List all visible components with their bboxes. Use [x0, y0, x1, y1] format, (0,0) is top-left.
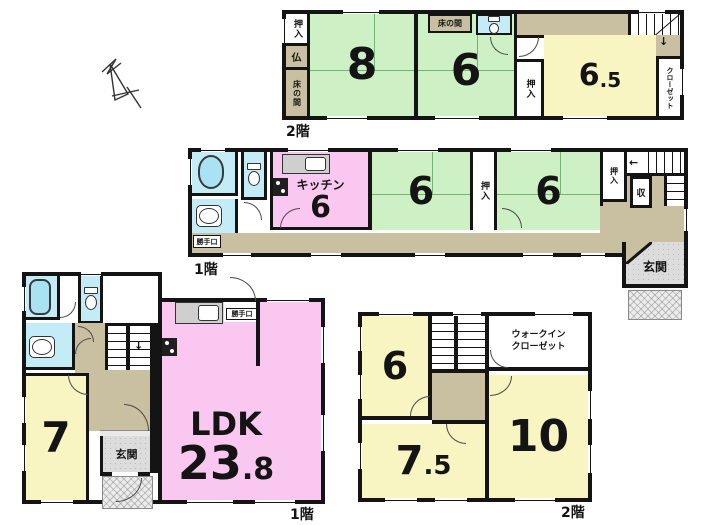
floorplan-1f-main-west: ↓ 7 玄関 — [22, 272, 162, 504]
back-door: 勝手口 — [193, 235, 221, 248]
floorplan-1f-main-ldk: 勝手口 LDK 23 .8 — [158, 298, 325, 504]
washroom-main — [26, 323, 75, 370]
window-icon — [321, 414, 325, 452]
door-swing-icon — [116, 478, 142, 502]
back-door: 勝手口 — [226, 308, 258, 320]
window-icon — [222, 253, 252, 257]
toilet-room-2f — [476, 14, 512, 35]
window-icon — [282, 18, 286, 44]
window-icon — [321, 326, 325, 364]
floor-label-1f-annex: 1階 — [194, 259, 218, 279]
window-icon — [397, 148, 439, 152]
sink-bowl — [199, 208, 219, 224]
room-6-2f-size: 6 — [382, 347, 408, 385]
toilet-icon — [84, 287, 98, 310]
floorplan-2f-main: 6 ウォークイン クローゼット 10 7 .5 — [358, 312, 592, 502]
floor-label-1f-main: 1階 — [290, 504, 314, 524]
window-icon — [414, 253, 446, 257]
closet-b-label: 押入 — [610, 167, 618, 185]
burner — [165, 341, 169, 345]
bathtub-icon — [198, 155, 224, 189]
window-icon — [358, 326, 362, 352]
window-icon — [22, 396, 26, 424]
window-icon — [638, 10, 666, 14]
north-arrow-icon — [98, 55, 148, 113]
window-icon — [434, 116, 480, 120]
entrance-label: 玄関 — [116, 446, 138, 462]
window-icon — [588, 444, 592, 474]
hallway-area — [517, 14, 628, 35]
stair-treads — [641, 152, 684, 173]
window-icon — [326, 116, 368, 120]
closet-mid: 押入 — [517, 59, 544, 116]
toilet-room-1f — [241, 152, 267, 200]
stove-icon — [273, 178, 288, 196]
window-icon — [342, 10, 380, 14]
window-icon — [358, 374, 362, 400]
kitchen-size: 6 — [310, 193, 331, 223]
door-swing-icon — [244, 202, 262, 220]
entrance-porch-main — [102, 476, 153, 509]
room-8-size: 8 — [347, 43, 378, 87]
window-icon — [358, 442, 362, 470]
window-icon — [588, 390, 592, 420]
stair-arrow-icon: ↓ — [134, 340, 143, 351]
stair-treads — [108, 326, 126, 370]
entrance: 玄関 — [626, 248, 684, 284]
ldk-room: LDK 23 .8 — [156, 402, 296, 492]
room-10-size: 10 — [508, 415, 569, 459]
toilet-bowl — [489, 23, 499, 34]
staircase-icon: ← — [627, 152, 684, 176]
wic-label-line1: ウォークイン — [511, 330, 565, 342]
floorplan-1f-annex: 勝手口 キッチン 6 6 押入 6 押入 収 ← — [188, 148, 688, 257]
window-icon — [266, 298, 310, 302]
back-door-label: 勝手口 — [232, 309, 253, 319]
window-icon — [534, 312, 574, 316]
wall — [256, 302, 260, 366]
storage: 収 — [630, 176, 652, 208]
floor-label-2f-annex: 2階 — [286, 121, 310, 141]
butsudan-label: 仏 — [292, 49, 302, 64]
floorplan-2f-annex: 押入 仏 床の間 8 6 床の間 ↓ 押入 6 .5 — [282, 10, 684, 120]
room-7-5-frac: .5 — [423, 453, 451, 479]
ldk-size-main: 23 — [178, 440, 242, 486]
sink-basin — [305, 157, 326, 171]
wic-label-line2: クローゼット — [511, 342, 565, 354]
room-6-5-frac: .5 — [600, 70, 622, 90]
entrance-porch — [628, 290, 682, 320]
toilet-tank — [488, 16, 500, 22]
door-swing-icon — [230, 277, 256, 301]
window-icon — [580, 253, 606, 257]
burner — [170, 349, 174, 353]
back-door-label: 勝手口 — [197, 237, 218, 247]
hallway-area — [432, 373, 485, 420]
window-icon — [510, 148, 552, 152]
window-icon — [434, 498, 468, 502]
burner — [276, 181, 280, 185]
staircase-icon — [664, 176, 684, 206]
closet-right-label: クローゼット — [666, 67, 673, 109]
window-icon — [310, 253, 342, 257]
room-6-left-size: 6 — [408, 172, 434, 210]
toilet-room-main — [78, 276, 103, 324]
window-icon — [80, 272, 102, 276]
closet-right: クローゼット — [656, 56, 680, 116]
storage-label: 収 — [636, 186, 645, 199]
ldk-size: 23 .8 — [178, 440, 274, 486]
window-icon — [22, 444, 26, 472]
window-icon — [384, 498, 418, 502]
window-icon — [684, 208, 688, 232]
floor-label-2f-main: 2階 — [561, 502, 585, 522]
room-6-size: 6 — [451, 49, 482, 93]
window-icon — [378, 312, 414, 316]
closet-left: 押入 — [286, 14, 310, 46]
room-8-tatami: 8 — [310, 14, 414, 116]
room-6-right-size: 6 — [535, 172, 561, 210]
closet-mid-label: 押入 — [525, 79, 534, 99]
room-6-5-size: 6 — [579, 61, 600, 91]
butsudan-space: 仏 — [286, 46, 310, 70]
window-icon — [200, 148, 226, 152]
entrance-hall-1f-annex: 玄関 — [622, 242, 688, 288]
room-7-5: 7 .5 — [362, 424, 485, 498]
staircase-icon: ↓ — [105, 323, 150, 370]
closet-label: 押入 — [292, 19, 301, 39]
window-icon — [254, 500, 296, 504]
toilet-icon — [247, 163, 261, 186]
toilet-tank — [84, 287, 98, 294]
window-icon — [452, 312, 482, 316]
entrance-hall-main: 玄関 — [100, 436, 150, 472]
floorplan-canvas: 押入 仏 床の間 8 6 床の間 ↓ 押入 6 .5 — [0, 0, 705, 525]
window-icon — [40, 500, 74, 504]
toilet-bowl — [248, 171, 260, 186]
bathroom — [192, 152, 238, 196]
closet-a: 押入 — [470, 152, 497, 230]
sink-icon — [196, 205, 222, 227]
tokonoma-top: 床の間 — [428, 14, 472, 33]
room-10: 10 — [489, 375, 588, 498]
stair-arrow-icon: ↓ — [659, 36, 668, 47]
bathroom-main — [26, 276, 60, 320]
window-icon — [514, 498, 556, 502]
room-7-5-size: 7 — [396, 441, 424, 481]
burner — [281, 189, 285, 193]
toilet-bowl — [85, 295, 97, 310]
window-icon — [680, 68, 684, 96]
sink-bowl — [32, 339, 52, 355]
door-swing-icon — [60, 302, 76, 318]
window-icon — [186, 500, 234, 504]
stair-arrow-icon: ← — [629, 157, 638, 168]
window-icon — [22, 286, 26, 312]
door-swing-icon — [519, 37, 539, 57]
toilet-icon — [488, 16, 500, 34]
toilet-tank — [247, 163, 261, 170]
staircase-icon — [432, 316, 485, 373]
washroom — [192, 199, 238, 233]
kitchen-sink-icon — [282, 154, 330, 174]
stair-treads — [667, 176, 684, 206]
room-6-left-tatami: 6 — [372, 152, 470, 230]
tokonoma-top-label: 床の間 — [438, 18, 462, 29]
ldk-size-frac: .8 — [242, 455, 274, 485]
stove-icon — [162, 338, 177, 356]
sink-basin — [198, 305, 219, 321]
hallway-area — [192, 233, 684, 253]
window-icon — [287, 148, 329, 152]
window-icon — [522, 253, 554, 257]
stair-treads — [458, 316, 485, 369]
stair-treads — [432, 316, 454, 369]
room-7-size: 7 — [41, 417, 70, 459]
bathtub-icon — [29, 279, 51, 315]
closet-a-label: 押入 — [479, 181, 488, 201]
tokonoma-left-label: 床の間 — [293, 80, 301, 107]
room-6-5: 6 .5 — [544, 35, 656, 116]
entrance-label: 玄関 — [643, 258, 667, 275]
window-icon — [562, 116, 608, 120]
kitchen-sink-icon — [175, 302, 223, 324]
sink-icon — [29, 336, 55, 358]
closet-b: 押入 — [603, 152, 627, 202]
window-icon — [188, 158, 192, 186]
tokonoma-left: 床の間 — [286, 70, 310, 116]
